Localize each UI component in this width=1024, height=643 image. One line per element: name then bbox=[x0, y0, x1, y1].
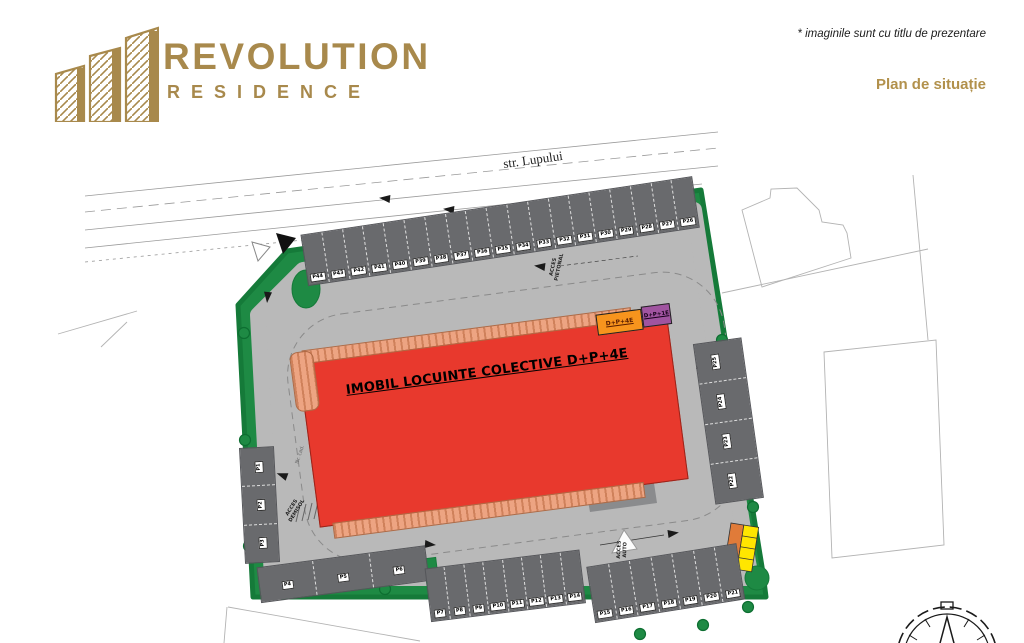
parking-stall-label: P20 bbox=[703, 592, 720, 603]
parking-stall-label: P40 bbox=[392, 259, 409, 270]
parking-stall: P23 bbox=[705, 418, 757, 464]
parking-stall-label: P31 bbox=[577, 232, 594, 243]
parking-stall-label: P19 bbox=[682, 595, 699, 606]
parking-stall-label: P1 bbox=[254, 460, 263, 473]
annex-dp4e: D+P+4E bbox=[595, 309, 643, 336]
site-plan-drawing bbox=[0, 0, 1024, 643]
parking-stall: P22 bbox=[711, 458, 763, 503]
parking-stall-label: P15 bbox=[597, 609, 614, 620]
parking-stall-label: P11 bbox=[509, 599, 526, 610]
parking-stall-label: P2 bbox=[256, 499, 265, 512]
parking-stall-label: P41 bbox=[371, 263, 388, 274]
parking-stall-label: P4 bbox=[281, 580, 294, 590]
parking-stall: P4 bbox=[258, 561, 318, 602]
compass-icon bbox=[897, 602, 997, 643]
main-building: IMOBIL LOCUINTE COLECTIVE D+P+4E D+P+4E … bbox=[298, 313, 689, 527]
entry-marker-white bbox=[252, 242, 270, 261]
parking-stall-label: P21 bbox=[725, 588, 742, 599]
parking-stall-label: P33 bbox=[536, 238, 553, 249]
parking-stall-label: P5 bbox=[337, 573, 350, 583]
parking-stall-label: P32 bbox=[556, 235, 573, 246]
parking-stall-label: P27 bbox=[659, 219, 676, 230]
parking-stall-label: P38 bbox=[433, 253, 450, 264]
parking-stall-label: P35 bbox=[495, 244, 512, 255]
parking-stall: P5 bbox=[313, 554, 373, 595]
parking-stall-label: P24 bbox=[716, 393, 727, 410]
parking-stall-label: P16 bbox=[618, 605, 635, 616]
parking-stall-label: P12 bbox=[528, 596, 545, 607]
parking-stall-label: P36 bbox=[474, 247, 491, 258]
parking-stall-label: P43 bbox=[330, 269, 347, 280]
parking-stall: P2 bbox=[242, 485, 277, 525]
parking-stall-label: P13 bbox=[547, 594, 564, 605]
parking-stall: P6 bbox=[369, 546, 428, 587]
parking-stall-label: P7 bbox=[434, 608, 447, 618]
parking-column-left: P1P2P3 bbox=[240, 447, 279, 563]
access-auto-label: ACCES AUTO bbox=[617, 537, 629, 563]
parking-stall-label: P17 bbox=[639, 602, 656, 613]
annex-dp1e: D+P+1E bbox=[641, 303, 672, 328]
parking-stall-label: P30 bbox=[597, 229, 614, 240]
parking-stall-label: P29 bbox=[618, 226, 635, 237]
parking-stall-label: P10 bbox=[490, 601, 507, 612]
parking-stall-label: P39 bbox=[412, 256, 429, 267]
parking-stall-label: P42 bbox=[351, 266, 368, 277]
parking-stall-label: P18 bbox=[661, 598, 678, 609]
parking-stall-label: P25 bbox=[710, 353, 721, 370]
parking-stall: P1 bbox=[240, 447, 275, 487]
parking-stall-label: P34 bbox=[515, 241, 532, 252]
parking-stall-label: P22 bbox=[727, 473, 738, 490]
parking-stall-label: P8 bbox=[453, 606, 466, 616]
parking-stall-label: P26 bbox=[680, 216, 697, 227]
parking-stall-label: P6 bbox=[393, 565, 406, 575]
parking-stall-label: P44 bbox=[309, 272, 326, 283]
parking-stall-label: P9 bbox=[472, 604, 485, 614]
parking-stall: P3 bbox=[244, 524, 279, 563]
parking-stall-label: P28 bbox=[639, 223, 656, 234]
parking-stall-label: P14 bbox=[567, 592, 584, 603]
parking-stall: P24 bbox=[700, 378, 752, 424]
parking-stall: P25 bbox=[694, 338, 746, 384]
parking-stall-label: P37 bbox=[453, 250, 470, 261]
site-plan-page: REVOLUTION RESIDENCE * imaginile sunt cu… bbox=[0, 0, 1024, 643]
parking-stall-label: P3 bbox=[258, 537, 267, 550]
parking-stall-label: P23 bbox=[721, 433, 732, 450]
